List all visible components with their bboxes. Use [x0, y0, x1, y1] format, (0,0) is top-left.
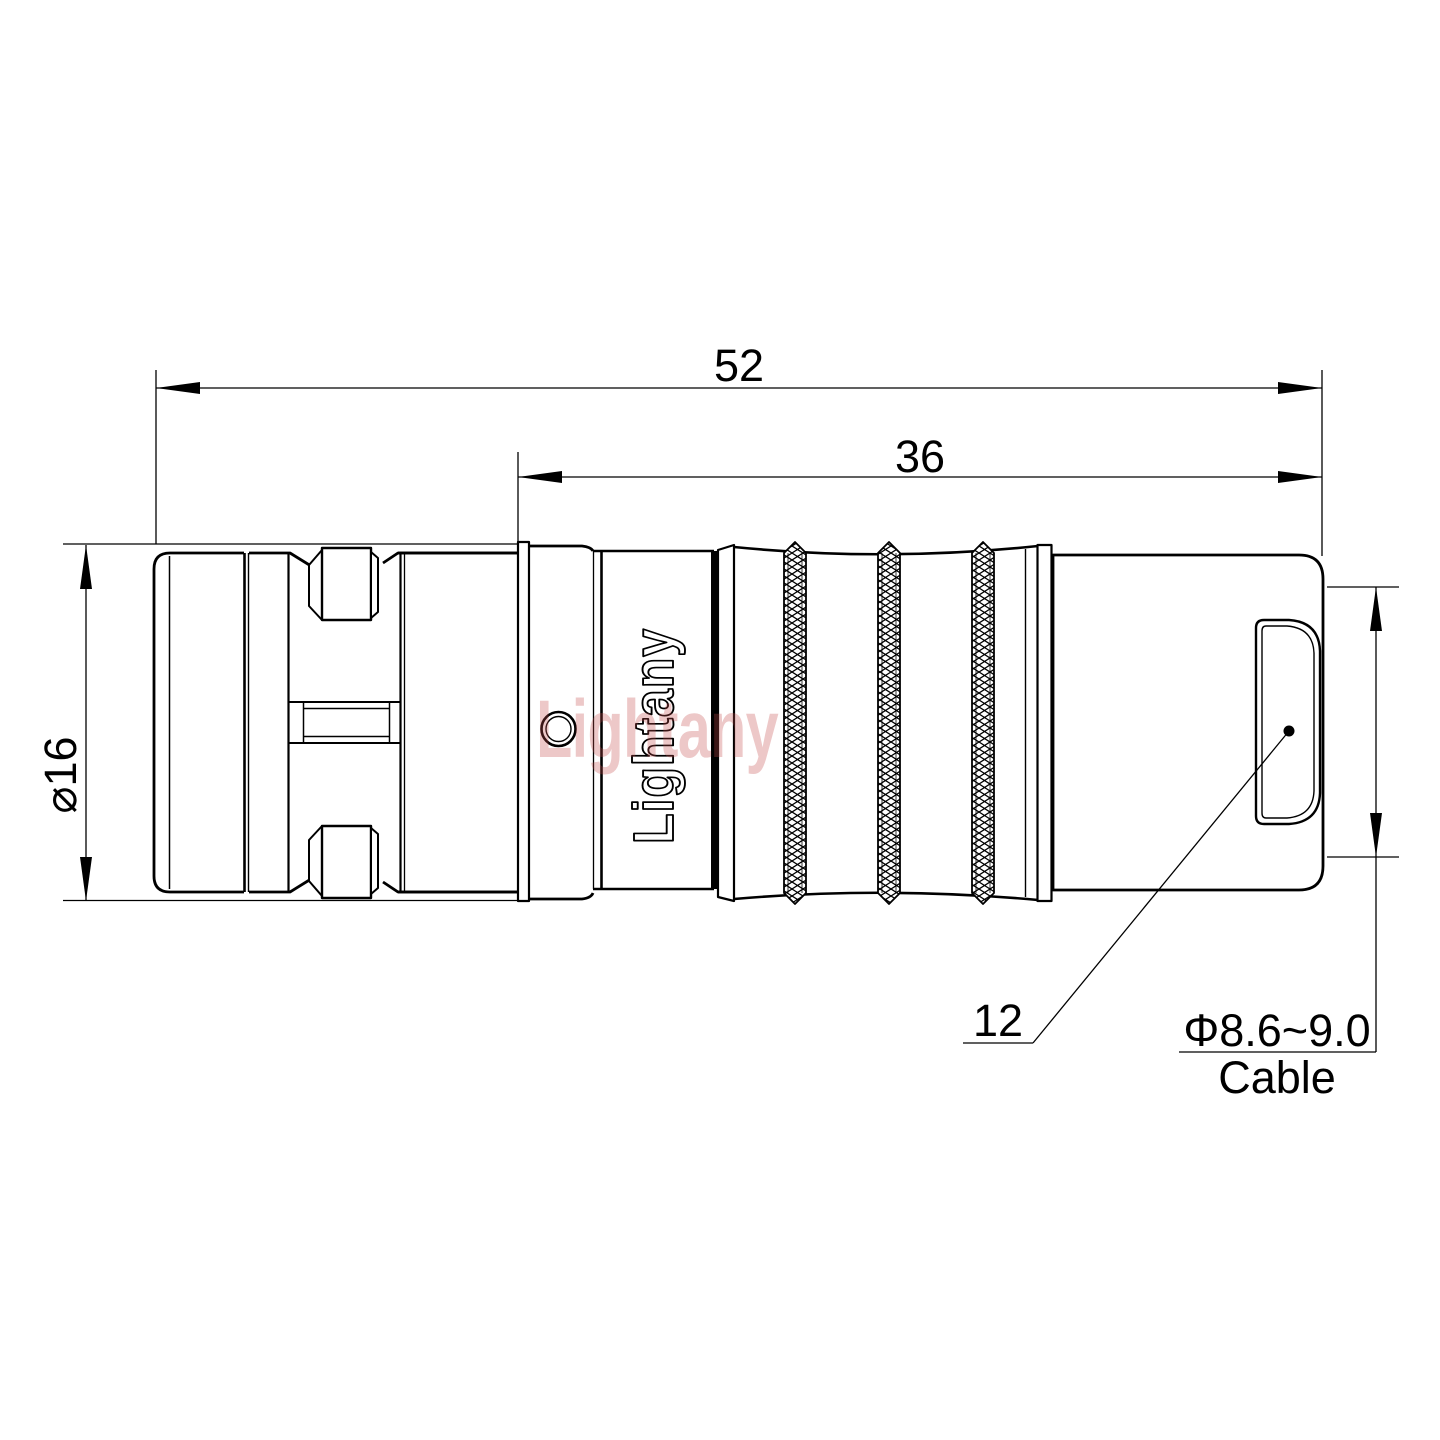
cable-entry-cavity [1256, 620, 1320, 824]
cable-spec-label: Φ8.6~9.0 [1183, 1005, 1370, 1056]
arrow-up-icon [1370, 587, 1382, 631]
arrow-right-icon [1278, 382, 1322, 394]
latch-key-bottom [309, 826, 378, 898]
front-nose-section [154, 553, 249, 892]
dim-12-label: 12 [973, 995, 1023, 1046]
dim-diameter16-label: ⌀16 [35, 736, 86, 813]
dim-52-label: 52 [714, 340, 764, 391]
arrow-left-icon [156, 382, 200, 394]
cable-sleeve-section [1053, 555, 1323, 890]
arrow-right-icon [1278, 471, 1322, 483]
watermark-text: Lightany [536, 684, 779, 775]
dimension-diameter-16 [80, 545, 92, 901]
dimension-52 [156, 370, 1322, 556]
leader-dot-icon [1284, 726, 1295, 737]
arrow-up-icon [80, 545, 92, 589]
latch-section [249, 548, 518, 898]
arrow-left-icon [518, 471, 562, 483]
arrow-down-icon [80, 857, 92, 901]
knurl-band-2 [878, 542, 900, 904]
knurl-band-1 [784, 542, 806, 904]
arrow-down-icon [1370, 813, 1382, 857]
ring-groove-a [518, 542, 529, 901]
dim-36-label: 36 [895, 431, 945, 482]
barrel-section [398, 553, 518, 892]
knurl-band-3 [972, 542, 994, 904]
dimension-12 [1327, 587, 1399, 1052]
cable-label: Cable [1218, 1052, 1336, 1103]
connector-technical-drawing: Lightany [0, 0, 1440, 1440]
latch-key-top [309, 548, 378, 620]
